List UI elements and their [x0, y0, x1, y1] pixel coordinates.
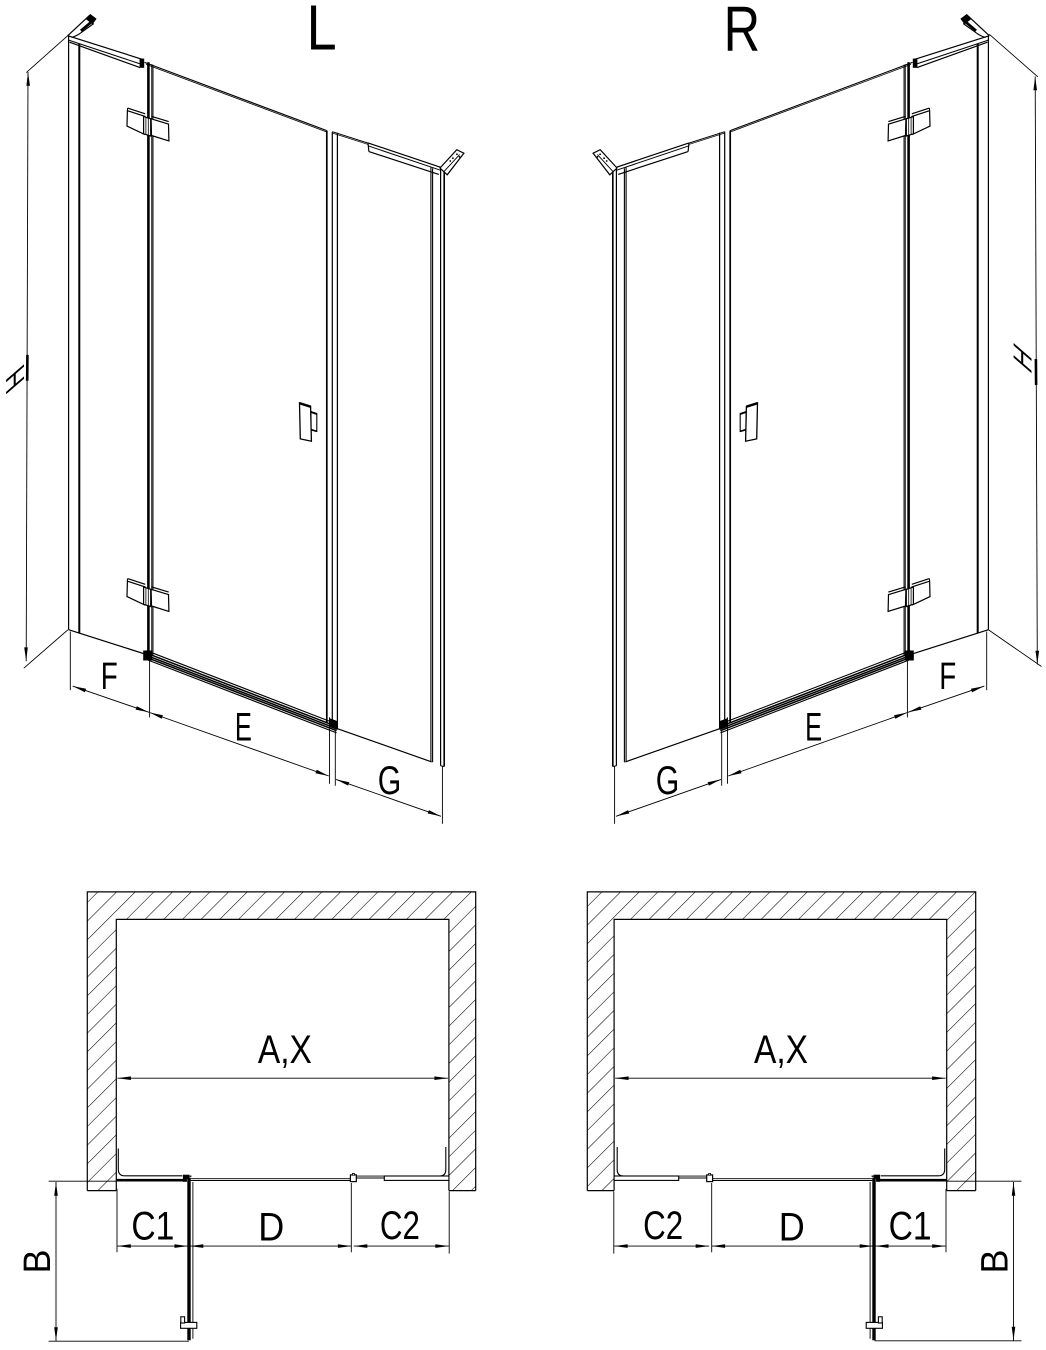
svg-text:F: F — [939, 656, 956, 698]
svg-text:F: F — [101, 656, 118, 698]
svg-text:D: D — [779, 1205, 805, 1249]
svg-text:R: R — [724, 0, 761, 65]
svg-text:A,X: A,X — [258, 1028, 312, 1072]
svg-text:B: B — [974, 1250, 1016, 1274]
svg-text:E: E — [805, 705, 822, 749]
svg-text:C2: C2 — [643, 1204, 683, 1248]
svg-text:E: E — [235, 705, 252, 749]
svg-text:C2: C2 — [380, 1204, 420, 1248]
svg-text:A,X: A,X — [754, 1028, 808, 1072]
svg-text:G: G — [656, 759, 680, 803]
svg-text:B: B — [17, 1250, 59, 1274]
svg-text:L: L — [307, 0, 337, 64]
svg-text:G: G — [378, 759, 402, 803]
svg-text:C1: C1 — [131, 1205, 174, 1249]
svg-text:C1: C1 — [889, 1205, 932, 1249]
svg-text:D: D — [258, 1205, 284, 1249]
